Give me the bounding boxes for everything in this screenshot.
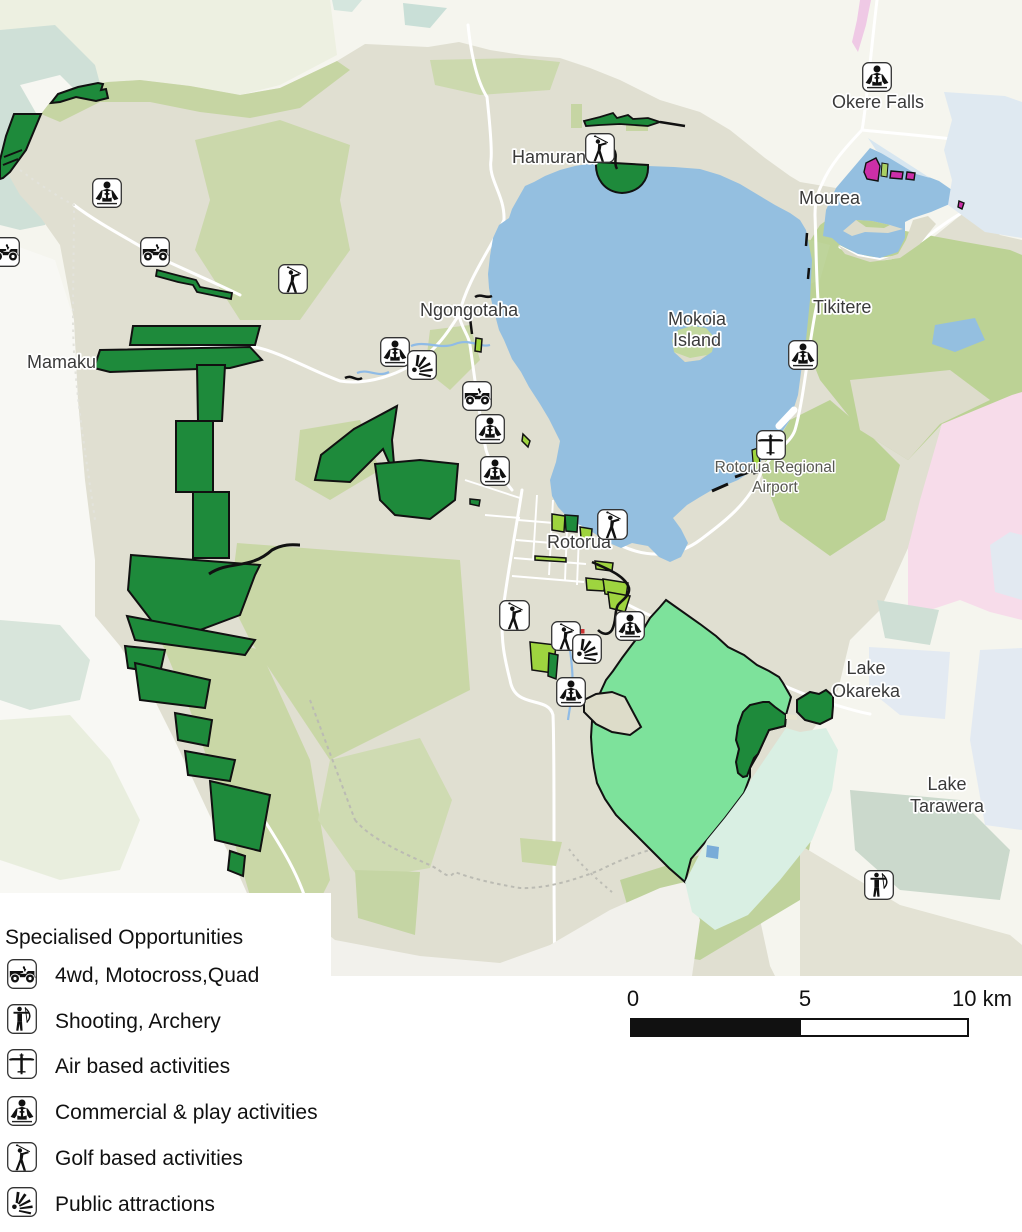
svg-text:Okareka: Okareka <box>832 681 901 701</box>
svg-text:Mamaku: Mamaku <box>27 352 96 372</box>
svg-text:Lake: Lake <box>927 774 966 794</box>
svg-text:Tarawera: Tarawera <box>910 796 985 816</box>
svg-text:Specialised Opportunities: Specialised Opportunities <box>5 926 243 949</box>
svg-text:Island: Island <box>673 330 721 350</box>
svg-text:4wd, Motocross,Quad: 4wd, Motocross,Quad <box>55 964 259 987</box>
svg-text:10 km: 10 km <box>952 986 1012 1011</box>
svg-text:0: 0 <box>627 986 639 1011</box>
svg-text:Okere Falls: Okere Falls <box>832 92 924 112</box>
svg-text:Hamurana: Hamurana <box>512 147 597 167</box>
svg-text:Public attractions: Public attractions <box>55 1193 215 1216</box>
svg-text:Ngongotaha: Ngongotaha <box>420 300 519 320</box>
svg-text:Mourea: Mourea <box>799 188 861 208</box>
svg-text:5: 5 <box>799 986 811 1011</box>
svg-text:Air based activities: Air based activities <box>55 1055 230 1078</box>
svg-text:Airport: Airport <box>752 479 798 496</box>
svg-text:Lake: Lake <box>846 658 885 678</box>
svg-text:Commercial & play activities: Commercial & play activities <box>55 1101 318 1124</box>
svg-text:Tikitere: Tikitere <box>813 297 871 317</box>
svg-text:Rotorua Regional: Rotorua Regional <box>715 459 836 476</box>
svg-text:Shooting, Archery: Shooting, Archery <box>55 1010 221 1033</box>
svg-text:Mokoia: Mokoia <box>668 309 727 329</box>
svg-text:Golf based activities: Golf based activities <box>55 1147 243 1170</box>
